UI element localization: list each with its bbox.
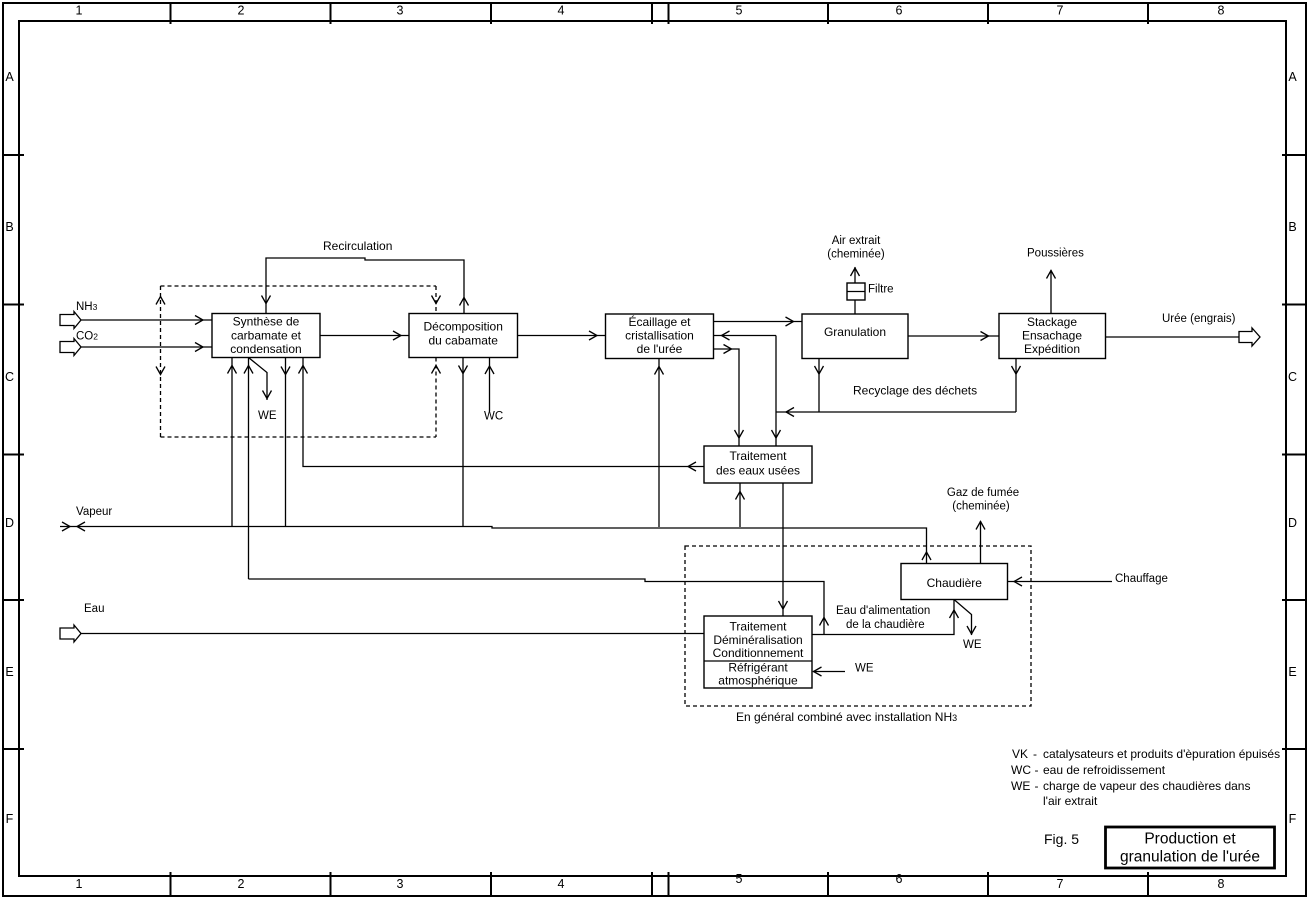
svg-text:B: B [5, 220, 13, 234]
svg-text:VK: VK [1012, 747, 1028, 761]
svg-text:C: C [5, 370, 14, 384]
svg-text:eau de refroidissement: eau de refroidissement [1043, 763, 1166, 777]
svg-text:6: 6 [896, 872, 903, 886]
svg-text:2: 2 [238, 877, 245, 891]
svg-text:Eau d'alimentation: Eau d'alimentation [836, 605, 930, 617]
svg-text:l'air extrait: l'air extrait [1043, 794, 1098, 808]
svg-text:-: - [1035, 763, 1039, 777]
svg-text:WE: WE [963, 639, 982, 651]
svg-text:F: F [1289, 812, 1297, 826]
svg-text:Expédition: Expédition [1024, 342, 1080, 356]
svg-text:catalysateurs et produits d'èp: catalysateurs et produits d'èpuration ép… [1043, 747, 1280, 761]
svg-text:NH3: NH3 [76, 301, 98, 313]
svg-text:Décomposition: Décomposition [424, 320, 503, 334]
svg-text:Ensachage: Ensachage [1022, 329, 1082, 343]
svg-text:carbamate et: carbamate et [231, 328, 302, 342]
svg-text:de l'urée: de l'urée [637, 342, 683, 356]
svg-text:A: A [1288, 70, 1297, 84]
svg-text:D: D [1288, 516, 1297, 530]
svg-text:3: 3 [397, 877, 404, 891]
svg-text:8: 8 [1218, 877, 1225, 891]
svg-text:Fig. 5: Fig. 5 [1044, 831, 1079, 847]
svg-text:Recirculation: Recirculation [323, 239, 392, 253]
svg-text:-: - [1035, 779, 1039, 793]
svg-text:Urée (engrais): Urée (engrais) [1162, 313, 1236, 325]
svg-text:Traitement: Traitement [730, 620, 788, 634]
svg-text:En général combiné avec instal: En général combiné avec installation NH3 [736, 710, 957, 724]
svg-text:3: 3 [397, 4, 404, 18]
svg-text:granulation de l'urée: granulation de l'urée [1120, 849, 1260, 866]
svg-text:Poussières: Poussières [1027, 248, 1084, 260]
svg-text:5: 5 [736, 872, 743, 886]
svg-text:C: C [1288, 370, 1297, 384]
svg-text:WE: WE [1011, 779, 1030, 793]
svg-text:Chaudière: Chaudière [927, 576, 983, 590]
svg-text:Gaz de fumée: Gaz de fumée [947, 487, 1019, 499]
svg-text:Synthèse de: Synthèse de [233, 315, 300, 329]
svg-text:condensation: condensation [230, 342, 301, 356]
svg-text:WC: WC [1011, 763, 1031, 777]
svg-text:1: 1 [76, 4, 83, 18]
svg-text:du cabamate: du cabamate [429, 334, 499, 348]
svg-text:E: E [5, 665, 13, 679]
svg-text:1: 1 [76, 877, 83, 891]
svg-text:(cheminée): (cheminée) [952, 501, 1010, 513]
svg-text:Déminéralisation: Déminéralisation [713, 633, 802, 647]
svg-text:Stackage: Stackage [1027, 315, 1077, 329]
svg-text:des eaux usées: des eaux usées [716, 464, 800, 478]
svg-text:WC: WC [484, 411, 503, 423]
svg-text:Traitement: Traitement [730, 449, 788, 463]
svg-text:5: 5 [736, 4, 743, 18]
svg-text:Vapeur: Vapeur [76, 506, 112, 518]
svg-text:4: 4 [558, 4, 565, 18]
svg-text:E: E [1288, 665, 1296, 679]
svg-text:Production et: Production et [1144, 831, 1236, 848]
svg-text:WE: WE [258, 410, 277, 422]
svg-text:B: B [1288, 220, 1296, 234]
svg-text:Recyclage des déchets: Recyclage des déchets [853, 384, 977, 398]
svg-text:(cheminée): (cheminée) [827, 249, 885, 261]
svg-text:F: F [6, 812, 14, 826]
svg-text:2: 2 [238, 4, 245, 18]
svg-text:CO2: CO2 [76, 331, 98, 343]
svg-text:Eau: Eau [84, 603, 104, 615]
svg-text:Conditionnement: Conditionnement [713, 646, 804, 660]
svg-text:4: 4 [558, 877, 565, 891]
svg-text:Réfrigérant: Réfrigérant [728, 660, 788, 674]
svg-text:Granulation: Granulation [824, 325, 886, 339]
svg-text:cristallisation: cristallisation [625, 329, 694, 343]
svg-text:Air extrait: Air extrait [832, 235, 881, 247]
svg-text:6: 6 [896, 4, 903, 18]
svg-text:atmosphérique: atmosphérique [718, 674, 798, 688]
svg-text:Écaillage et: Écaillage et [628, 314, 691, 329]
svg-text:7: 7 [1057, 4, 1064, 18]
svg-text:8: 8 [1218, 4, 1225, 18]
svg-text:WE: WE [855, 663, 874, 675]
svg-text:7: 7 [1057, 877, 1064, 891]
svg-text:de la chaudière: de la chaudière [846, 619, 925, 631]
svg-text:D: D [5, 516, 14, 530]
svg-text:Filtre: Filtre [868, 284, 894, 296]
svg-text:charge de vapeur des chaudière: charge de vapeur des chaudières dans [1043, 779, 1250, 793]
svg-text:Chauffage: Chauffage [1115, 573, 1168, 585]
svg-text:A: A [5, 70, 14, 84]
svg-text:-: - [1033, 747, 1037, 761]
